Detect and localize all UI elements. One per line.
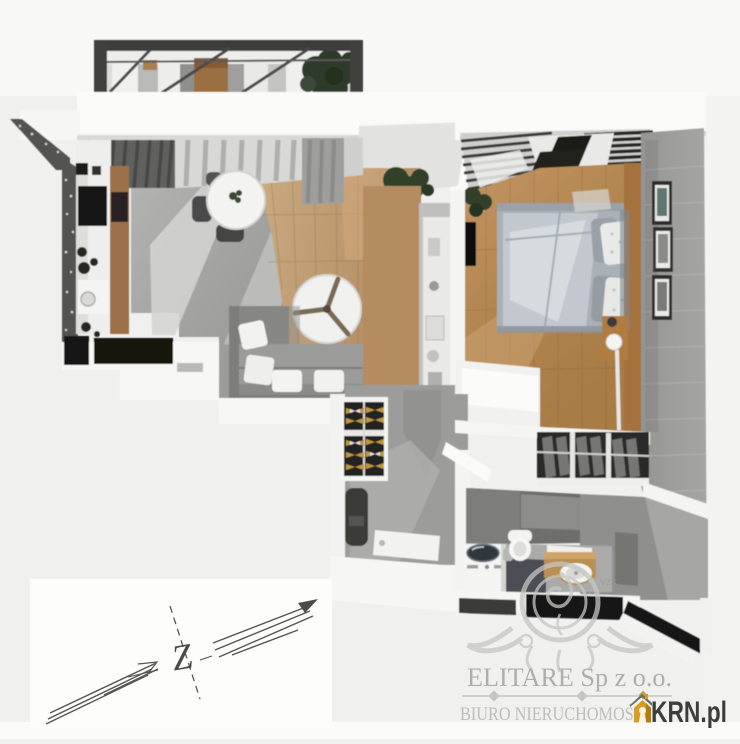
svg-text:vzk: vzk — [600, 574, 617, 588]
svg-text:ELITARE Sp z o.o.: ELITARE Sp z o.o. — [467, 663, 672, 692]
svg-text:KRN.pl: KRN.pl — [651, 696, 727, 729]
svg-text:BIURO NIERUCHOMOŚCI: BIURO NIERUCHOMOŚCI — [460, 703, 650, 725]
